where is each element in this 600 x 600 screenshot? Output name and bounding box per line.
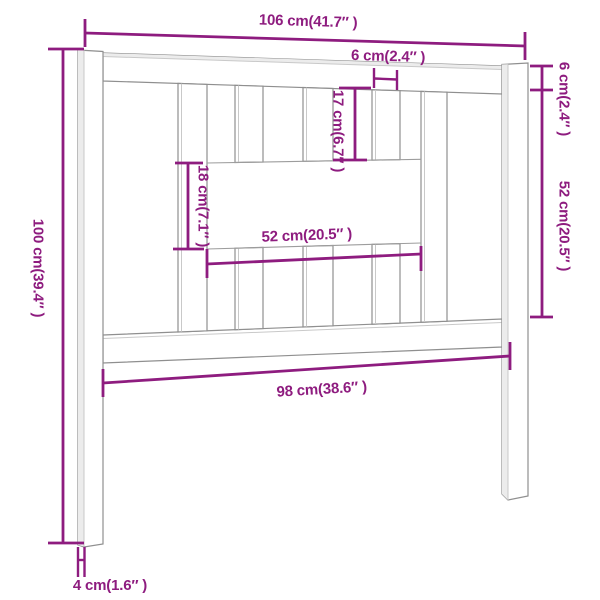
dim-slat-width-label: 6 cm(2.4″ ) — [351, 47, 426, 66]
dim-upper-slat-length: 17 cm(6.7″ ) — [330, 88, 372, 172]
slat-upper-segments — [235, 85, 400, 162]
dim-upper-slat-length-label: 17 cm(6.7″ ) — [330, 90, 347, 173]
dim-left-height: 100 cm(39.4″ ) — [30, 49, 85, 543]
diagram-canvas: 106 cm(41.7″ ) 6 cm(2.4″ ) 6 cm(2.4″ ) 5… — [0, 0, 600, 600]
dim-inner-width-label: 98 cm(38.6″ ) — [276, 378, 368, 401]
dim-opening-width-label: 52 cm(20.5″ ) — [261, 225, 352, 245]
dim-opening-height-label: 18 cm(7.1″ ) — [195, 165, 212, 248]
dim-leg-width: 4 cm(1.6″ ) — [73, 547, 147, 594]
right-post — [502, 63, 528, 500]
dim-top-rail-height: 6 cm(2.4″ ) — [530, 62, 573, 136]
dim-overall-width: 106 cm(41.7″ ) — [85, 11, 525, 60]
dim-left-height-label: 100 cm(39.4″ ) — [30, 219, 47, 318]
slat-right-full — [421, 91, 447, 322]
headboard-drawing — [78, 50, 528, 547]
left-post — [78, 50, 103, 547]
headboard-dimension-diagram: 106 cm(41.7″ ) 6 cm(2.4″ ) 6 cm(2.4″ ) 5… — [0, 0, 600, 600]
dim-right-inner-height-label: 52 cm(20.5″ ) — [556, 181, 573, 272]
dim-top-rail-height-label: 6 cm(2.4″ ) — [556, 62, 573, 136]
dim-leg-width-label: 4 cm(1.6″ ) — [73, 577, 147, 594]
dim-overall-width-label: 106 cm(41.7″ ) — [259, 11, 358, 31]
